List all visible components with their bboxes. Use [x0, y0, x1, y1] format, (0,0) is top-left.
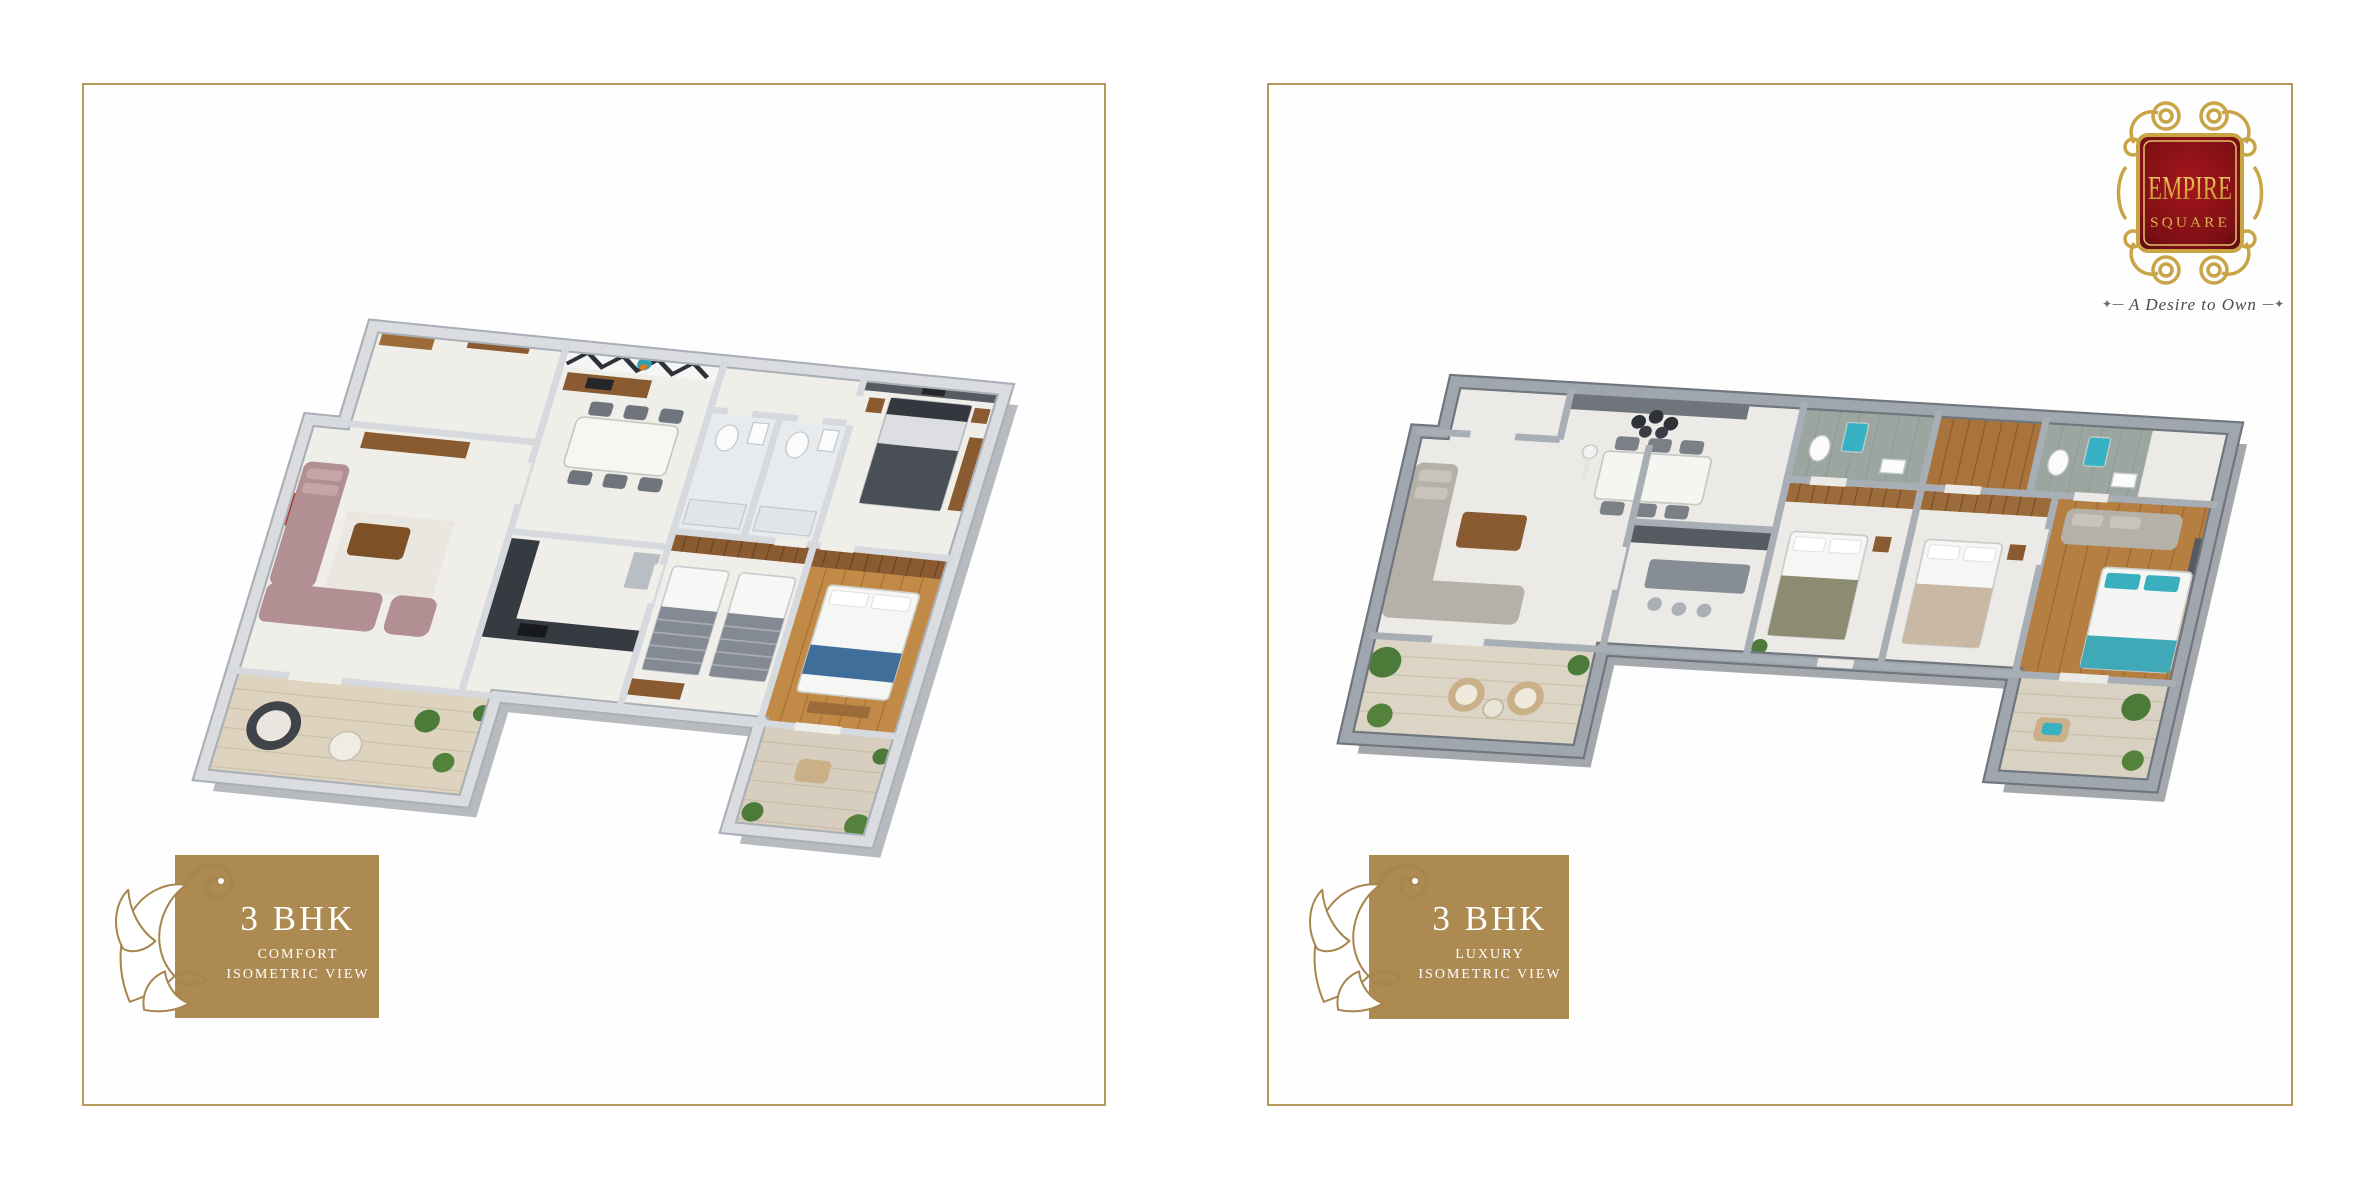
comfort-view-label: ISOMETRIC VIEW — [217, 967, 379, 983]
coffee-table — [346, 522, 412, 560]
luxury-title: 3 BHK — [1411, 901, 1569, 938]
comfort-label-box: 3 BHK COMFORT ISOMETRIC VIEW — [175, 855, 379, 1018]
kitchen-island — [1644, 559, 1751, 594]
brochure-page: 3 BHK COMFORT ISOMETRIC VIEW — [0, 0, 2376, 1188]
comfort-plan — [201, 323, 1006, 842]
patio-chair — [793, 758, 833, 784]
dining-table — [1594, 451, 1713, 505]
basin — [1880, 459, 1906, 474]
dining-table — [563, 416, 680, 476]
luxury-subtitle: LUXURY — [1411, 947, 1569, 963]
luxury-view-label: ISOMETRIC VIEW — [1411, 967, 1569, 983]
luxury-panel: EMPIRE SQUARE ✦— A Desire to Own —✦ — [1267, 83, 2293, 1106]
shower — [683, 499, 747, 529]
balcony-right-floor — [1991, 674, 2176, 786]
coffee-table — [1455, 511, 1528, 551]
comfort-panel: 3 BHK COMFORT ISOMETRIC VIEW — [82, 83, 1106, 1106]
shower — [753, 506, 817, 536]
sofa — [1381, 578, 1526, 625]
comfort-title: 3 BHK — [217, 901, 379, 938]
comfort-subtitle: COMFORT — [217, 947, 379, 963]
luxury-plan — [1346, 380, 2236, 786]
luxury-label-box: 3 BHK LUXURY ISOMETRIC VIEW — [1369, 855, 1569, 1019]
basin — [2111, 473, 2137, 488]
